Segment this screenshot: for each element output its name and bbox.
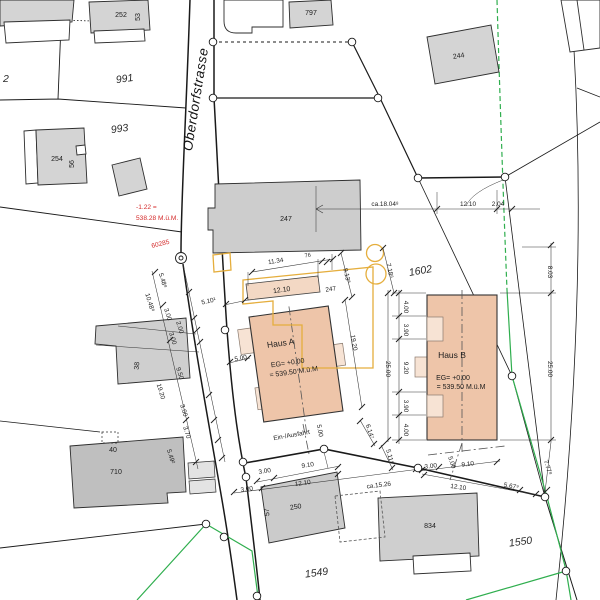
parcel-993-label: 993 xyxy=(110,122,129,136)
boundary-line-thick xyxy=(418,177,505,178)
building-40-label: 40 xyxy=(109,447,117,454)
parcel-991-label: 991 xyxy=(115,72,134,86)
survey-point xyxy=(253,592,261,600)
survey-point xyxy=(562,567,570,575)
building-252-label: 252 xyxy=(115,12,127,19)
survey-point xyxy=(202,520,210,528)
survey-point xyxy=(501,173,509,181)
survey-point xyxy=(414,464,422,472)
building-710-annex xyxy=(189,479,216,494)
survey-point xyxy=(239,458,247,466)
dim-hb-400b: 4.00 xyxy=(402,424,409,437)
haus-b-loggia xyxy=(427,317,443,341)
parcel-2-label: 2 xyxy=(2,73,9,85)
survey-point xyxy=(242,473,250,481)
haus-b-loggia xyxy=(427,395,443,417)
haus-b-title: Haus B xyxy=(438,350,466,360)
site-plan-drawing: Oberdorfstrasse 2 991 993 1602 1549 1550… xyxy=(0,0,600,600)
building-247-label: 247 xyxy=(280,216,292,223)
dim-hb-920: 9.20 xyxy=(402,362,409,375)
building-252-annex xyxy=(94,29,145,43)
dim-top-1210: 12.10 xyxy=(460,201,476,208)
dim-76: 76 xyxy=(304,253,311,260)
building-254-number: 56 xyxy=(69,160,76,168)
building-834-label: 834 xyxy=(424,523,436,530)
building-250-number: 57 xyxy=(264,508,272,516)
building-252-number: 53 xyxy=(135,13,142,21)
dim-hb-390b: 3.90 xyxy=(402,400,409,413)
survey-point xyxy=(541,493,549,501)
red-elevation-label: 538.28 M.ü.M. xyxy=(136,215,178,222)
survey-point xyxy=(221,326,229,334)
building-710-label: 710 xyxy=(110,469,122,476)
haus-b-eg: EG= +0.00 xyxy=(436,375,470,382)
haus-b-balcony xyxy=(415,357,427,377)
survey-point xyxy=(508,372,516,380)
dim-top-204: 2.04 xyxy=(492,201,505,208)
haus-b-level: = 539.50 M.ü.M xyxy=(437,384,486,391)
building-834-annex xyxy=(413,553,471,574)
survey-point xyxy=(414,174,422,182)
site-plan-canvas: Oberdorfstrasse 2 991 993 1602 1549 1550… xyxy=(0,0,600,600)
survey-point xyxy=(209,94,217,102)
survey-point xyxy=(374,94,382,102)
dim-803: 8.03 xyxy=(546,266,553,279)
dim-2500-right: 25.00 xyxy=(546,361,553,377)
dim-ca1804: ca.18.04⁸ xyxy=(371,201,399,208)
building-254-bump xyxy=(76,145,86,155)
red-delta-label: -1.22 = xyxy=(136,204,157,211)
building-710-annex xyxy=(188,461,215,479)
fixpoint-60285-inner xyxy=(179,256,183,260)
building-topleft-annex xyxy=(4,20,70,43)
building-797-label: 797 xyxy=(305,10,317,17)
survey-point xyxy=(209,38,217,46)
survey-point xyxy=(220,533,228,541)
dim-2500-left: 25.00 xyxy=(384,361,391,377)
survey-point xyxy=(348,38,356,46)
building-254-label: 254 xyxy=(51,156,63,163)
dim-hb-390a: 3.90 xyxy=(402,324,409,337)
building-38-label: 38 xyxy=(134,362,142,370)
dim-hb-400a: 4.00 xyxy=(402,301,409,314)
survey-point xyxy=(320,445,328,453)
